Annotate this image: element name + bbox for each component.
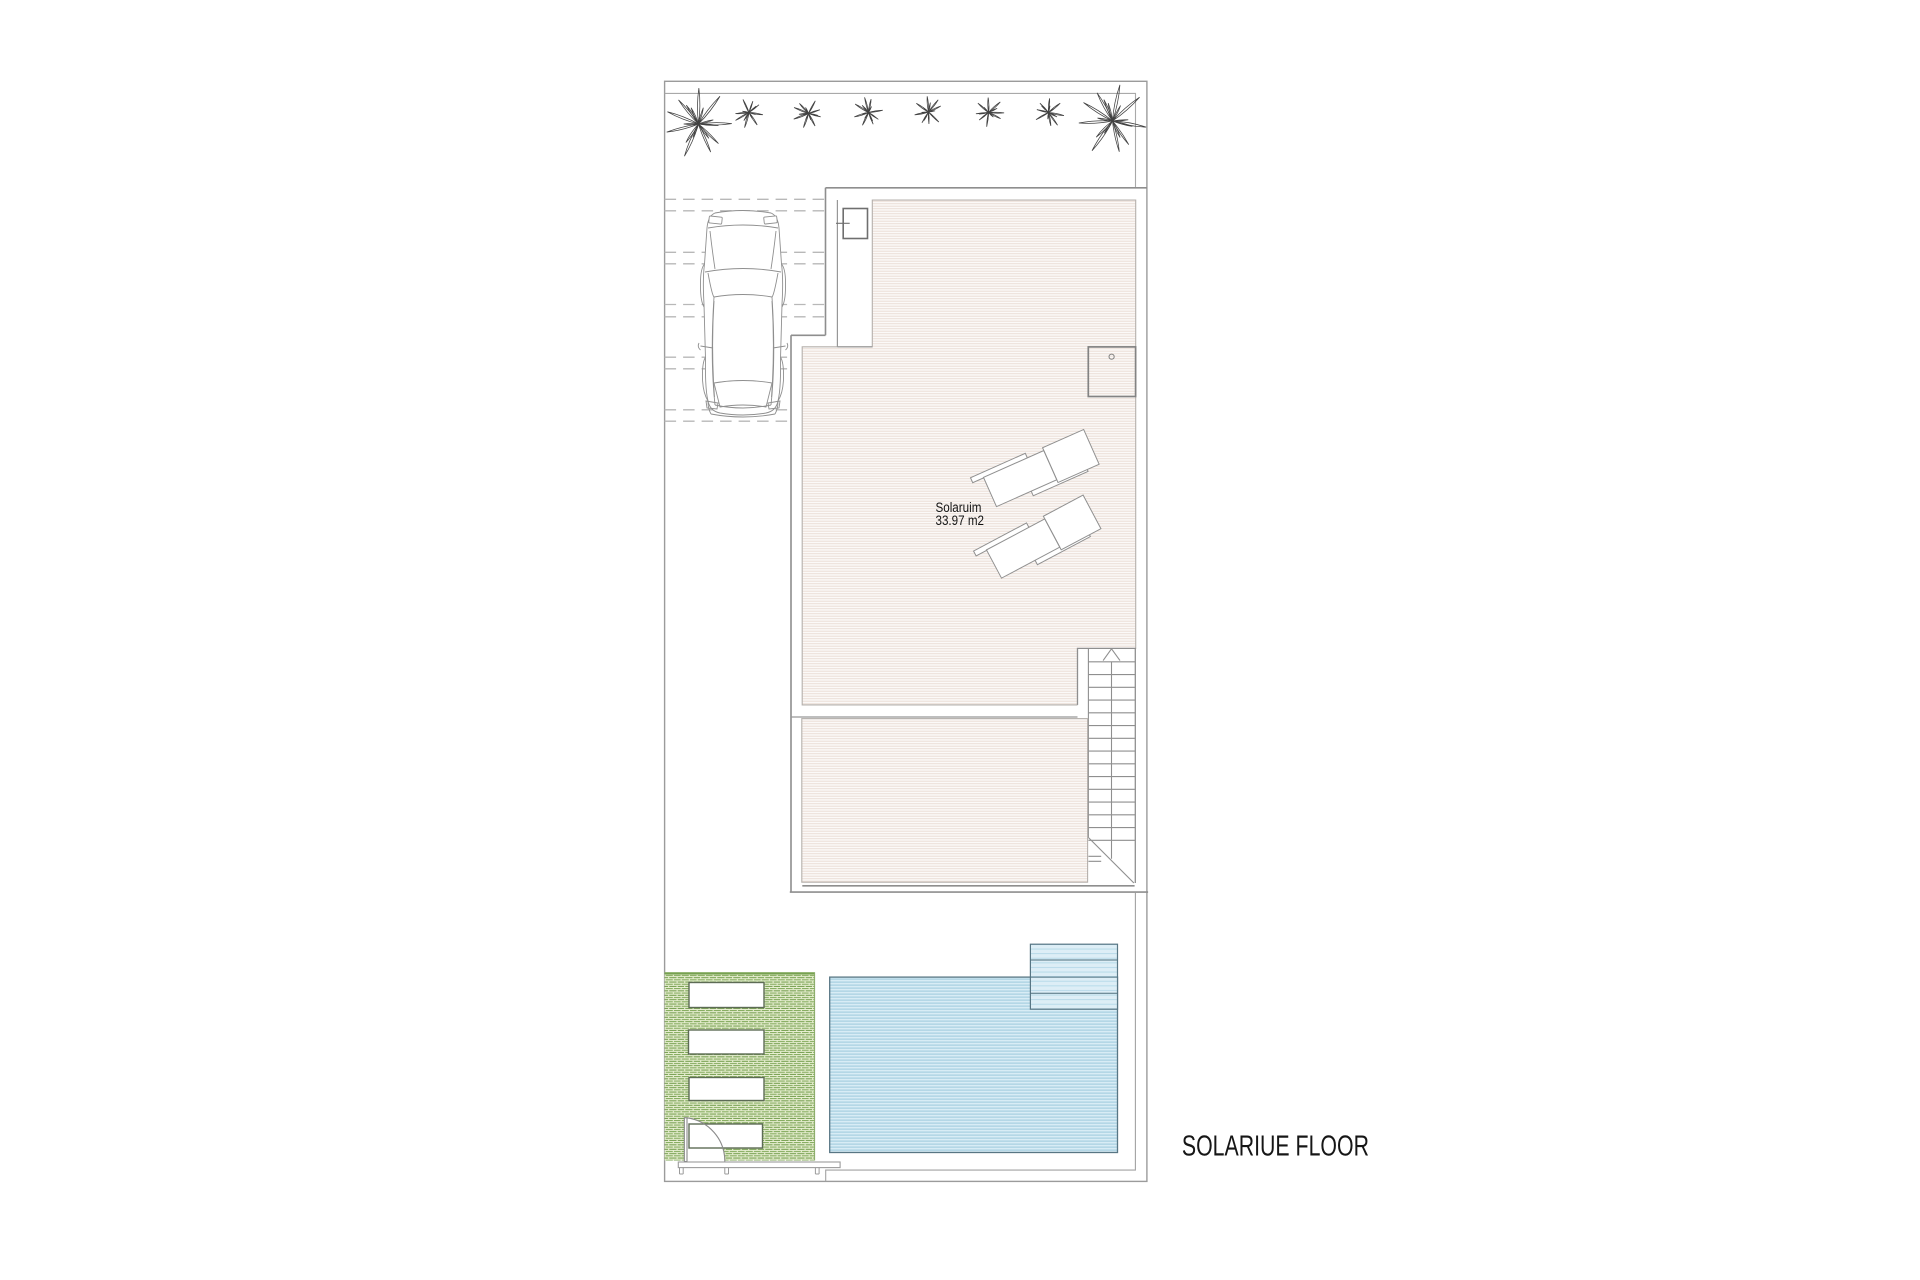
svg-text:33.97 m2: 33.97 m2 — [936, 512, 984, 528]
svg-text:SOLARIUE FLOOR: SOLARIUE FLOOR — [1182, 1131, 1369, 1163]
